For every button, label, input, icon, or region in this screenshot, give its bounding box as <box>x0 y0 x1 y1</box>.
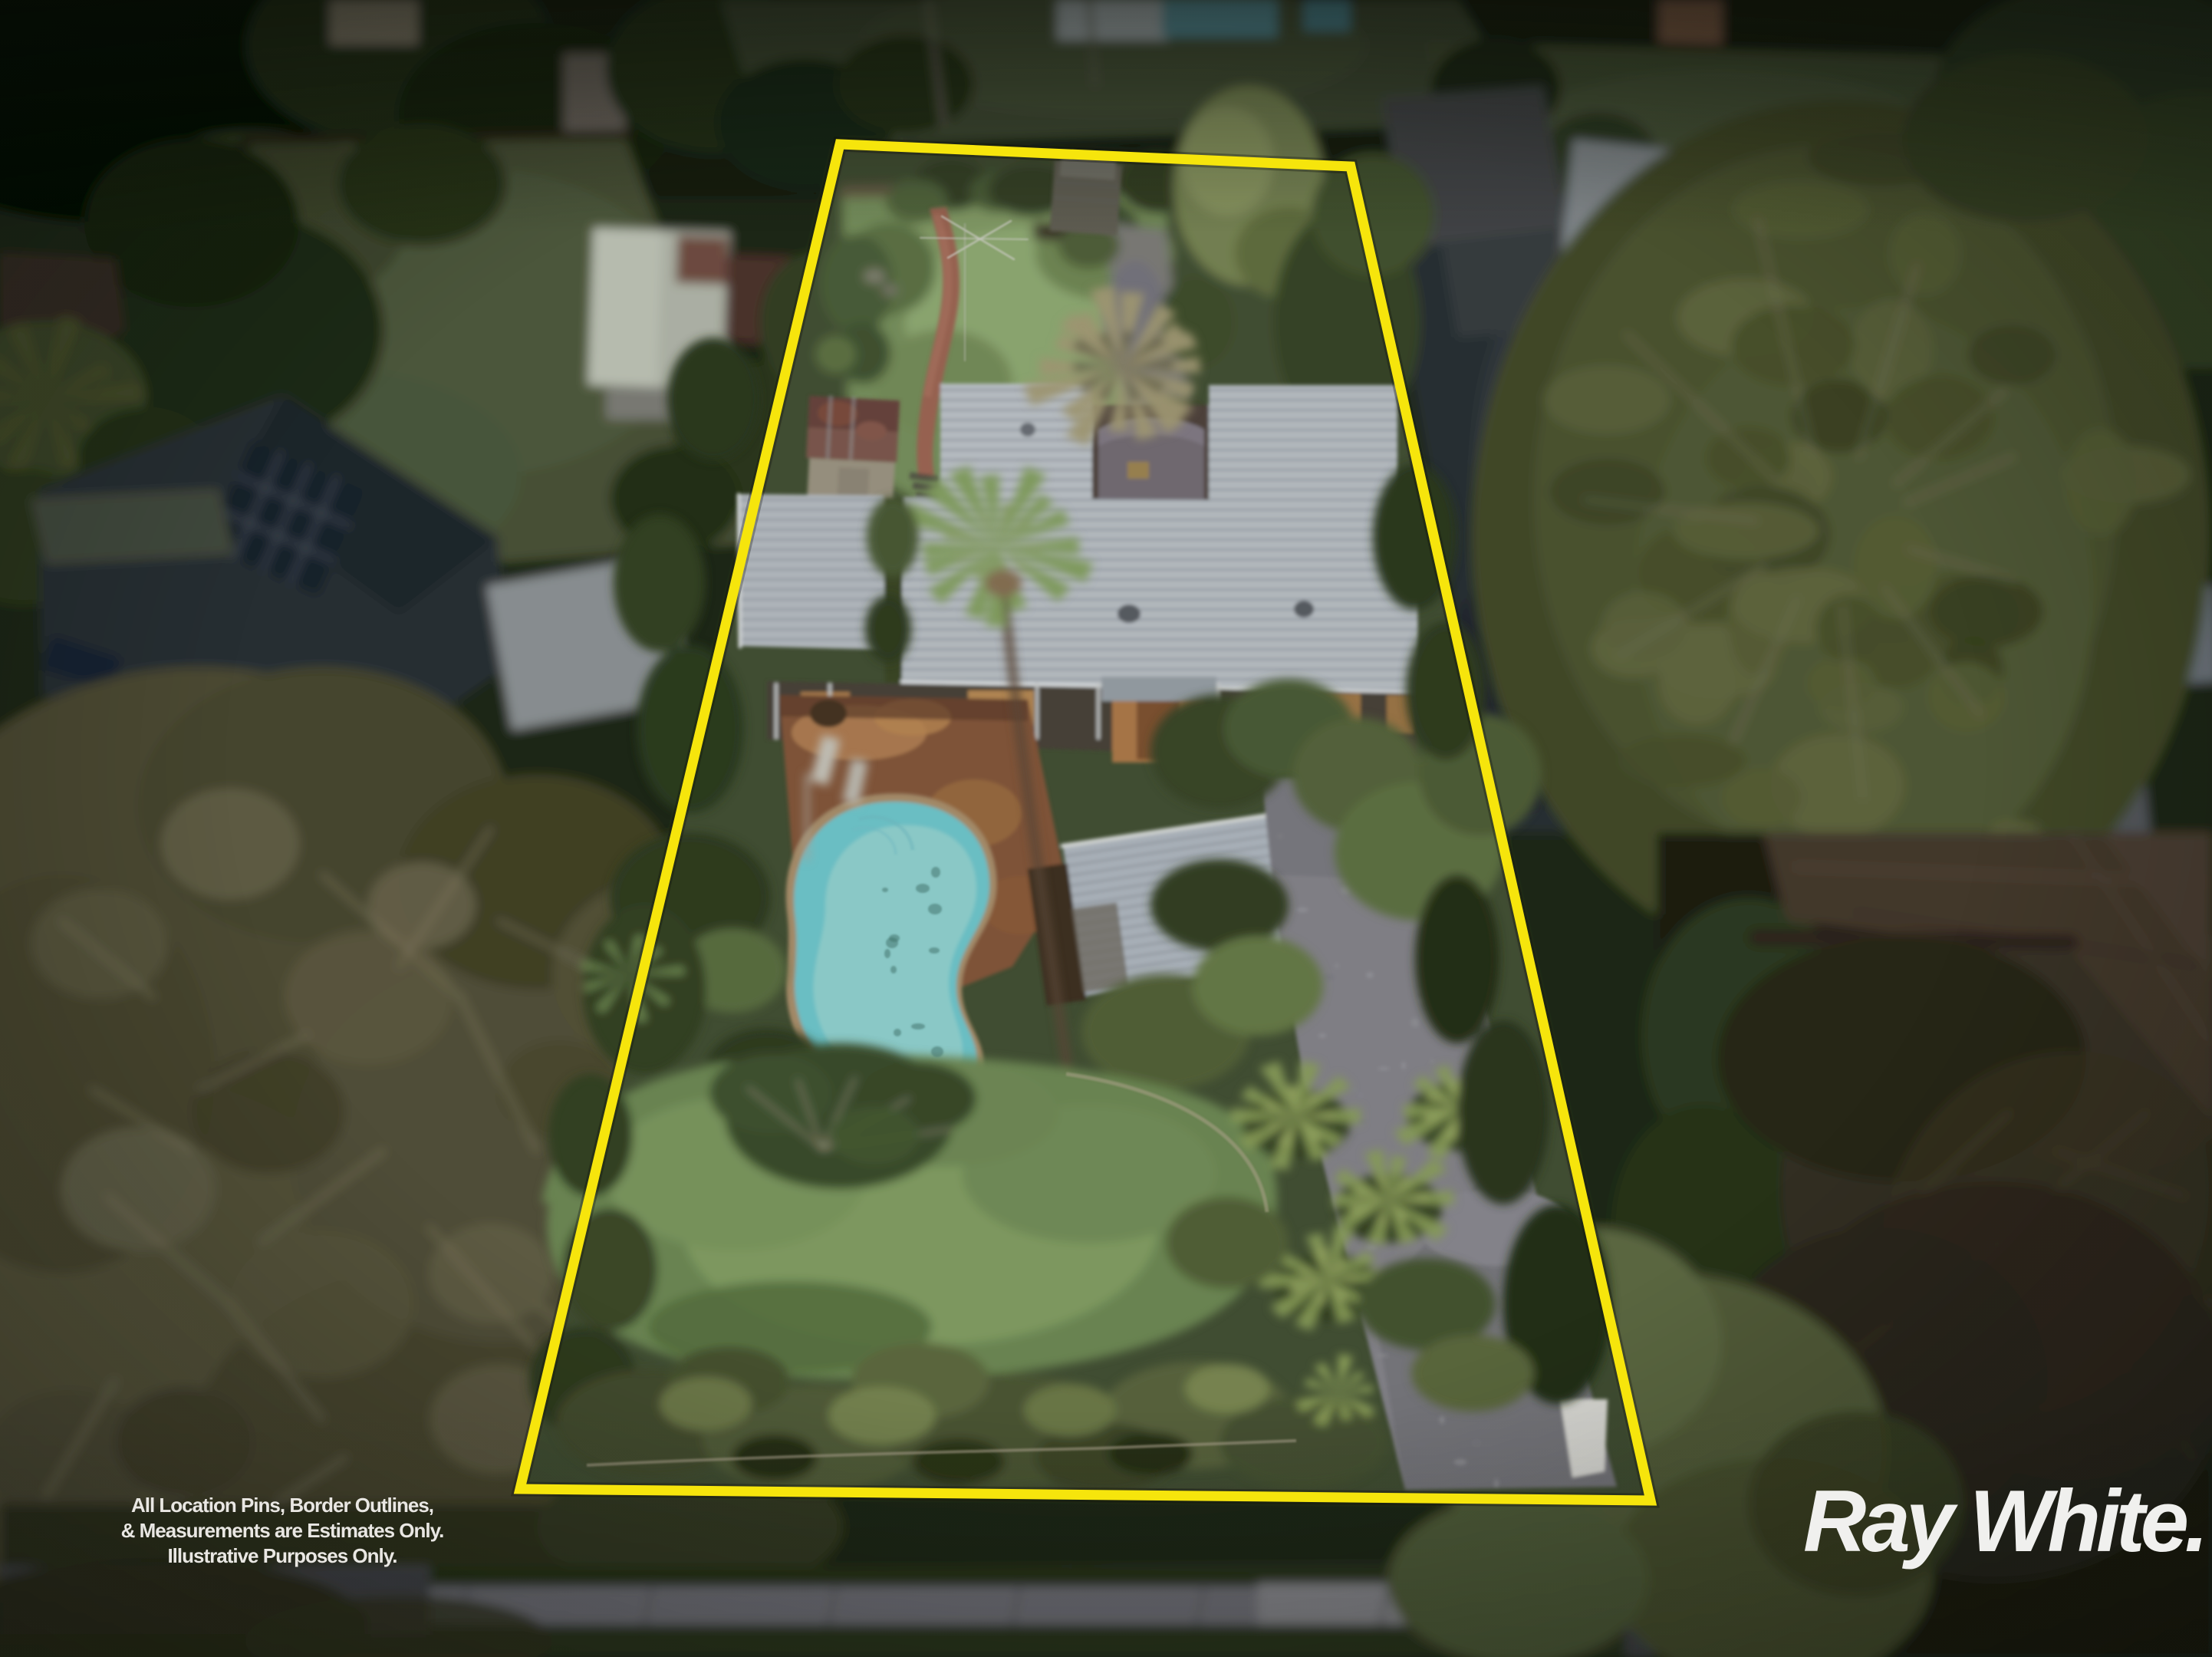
svg-text:& Measurements are Estimates O: & Measurements are Estimates Only. <box>121 1519 444 1542</box>
svg-text:Illustrative Purposes Only.: Illustrative Purposes Only. <box>167 1544 397 1567</box>
svg-text:All Location Pins, Border Outl: All Location Pins, Border Outlines, <box>131 1494 433 1517</box>
svg-text:Ray White.: Ray White. <box>1803 1473 2204 1570</box>
